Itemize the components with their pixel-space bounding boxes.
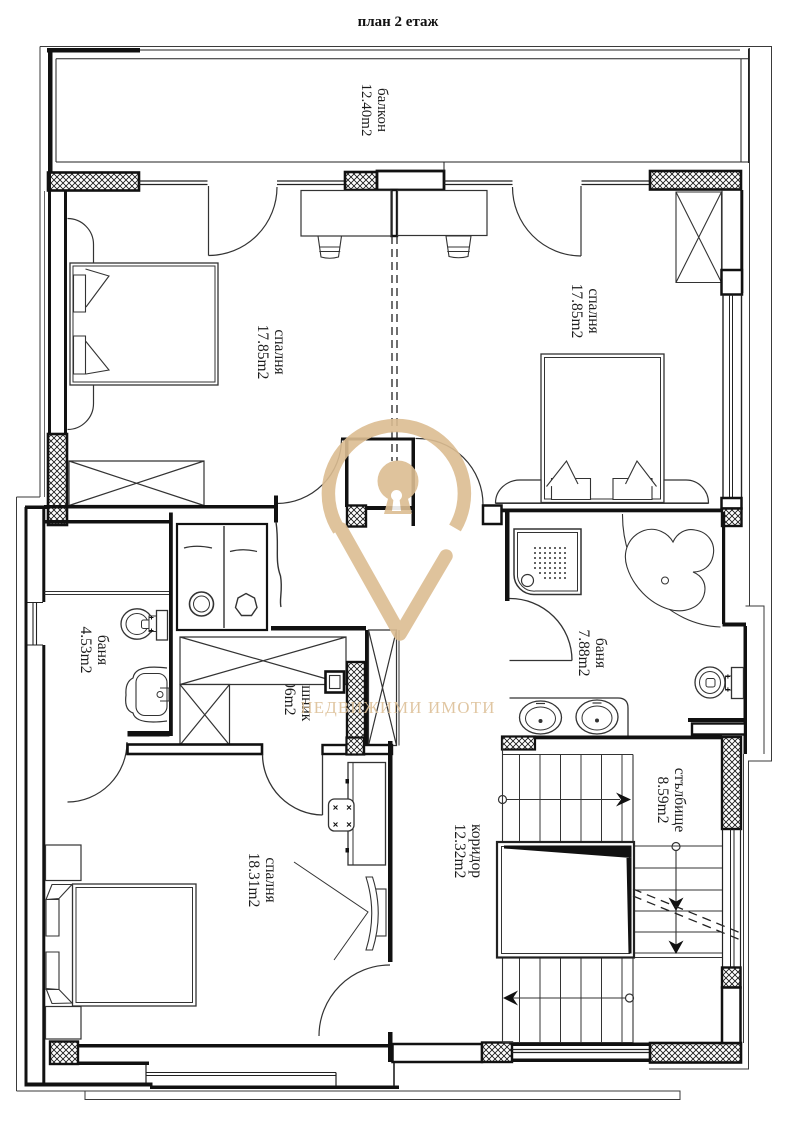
svg-text:спалня17.85m2: спалня17.85m2 <box>254 325 288 380</box>
svg-text:план 2 етаж: план 2 етаж <box>358 14 439 30</box>
svg-text:коридор12.32m2: коридор12.32m2 <box>451 824 485 879</box>
svg-text:спалня18.31m2: спалня18.31m2 <box>245 853 279 908</box>
svg-text:балкон12.40m2: балкон12.40m2 <box>358 84 390 137</box>
svg-text:стълбище8.59m2: стълбище8.59m2 <box>654 768 688 833</box>
svg-text:НЕДВИЖИМИ ИМОТИ: НЕДВИЖИМИ ИМОТИ <box>300 698 495 717</box>
svg-text:спалня17.85m2: спалня17.85m2 <box>568 284 602 339</box>
